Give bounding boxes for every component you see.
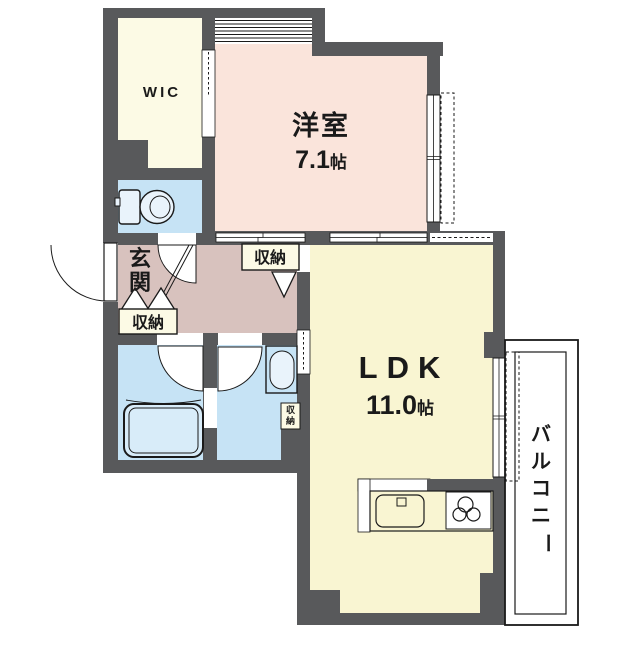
entrance-door-swing-icon: [51, 245, 107, 301]
corridor-hatch: [213, 18, 312, 42]
svg-text:ニ: ニ: [531, 505, 551, 527]
hall-closet-label: 収納: [254, 248, 286, 267]
sliding-door-western-ldk: [330, 233, 427, 242]
svg-text:ル: ル: [531, 451, 551, 473]
bathroom-doorway: [157, 333, 203, 345]
wic-label: WIC: [143, 84, 181, 101]
western-room-label: 洋室: [292, 110, 350, 141]
bathtub-icon: [124, 400, 203, 457]
svg-text:納: 納: [286, 415, 295, 426]
svg-text:玄: 玄: [129, 246, 151, 271]
washbasin-icon: [266, 346, 297, 393]
svg-text:ー: ー: [536, 533, 558, 553]
western-window-dashed-zone: [441, 93, 454, 223]
bath-washroom-gap: [204, 388, 217, 428]
entrance-door-leaf: [104, 243, 117, 301]
ldk-balcony-window: [493, 358, 505, 477]
washroom-doorway: [218, 333, 262, 345]
genkan-closet-label: 収納: [132, 313, 164, 332]
western-window: [427, 95, 440, 222]
ldk-label: LDK: [359, 350, 450, 385]
toilet-doorway: [158, 233, 196, 245]
sliding-door-hall-western: [216, 233, 305, 242]
svg-text:バ: バ: [531, 423, 551, 446]
stove-icon: [446, 492, 491, 529]
genkan-label: 玄 関: [129, 246, 151, 295]
svg-text:収: 収: [286, 404, 296, 415]
svg-text:関: 関: [129, 270, 151, 295]
floor-plan-page: WIC 洋室 7.1帖 LDK 11.0帖 玄 関 収納 収納 収 納 バ ル …: [0, 0, 640, 640]
svg-text:コ: コ: [531, 478, 551, 500]
open-boundary-dashed: [430, 233, 493, 242]
toilet-icon: [115, 190, 174, 224]
floor-plan-drawing: WIC 洋室 7.1帖 LDK 11.0帖 玄 関 収納 収納 収 納 バ ル …: [0, 0, 640, 640]
ldk-floor: [310, 240, 493, 613]
